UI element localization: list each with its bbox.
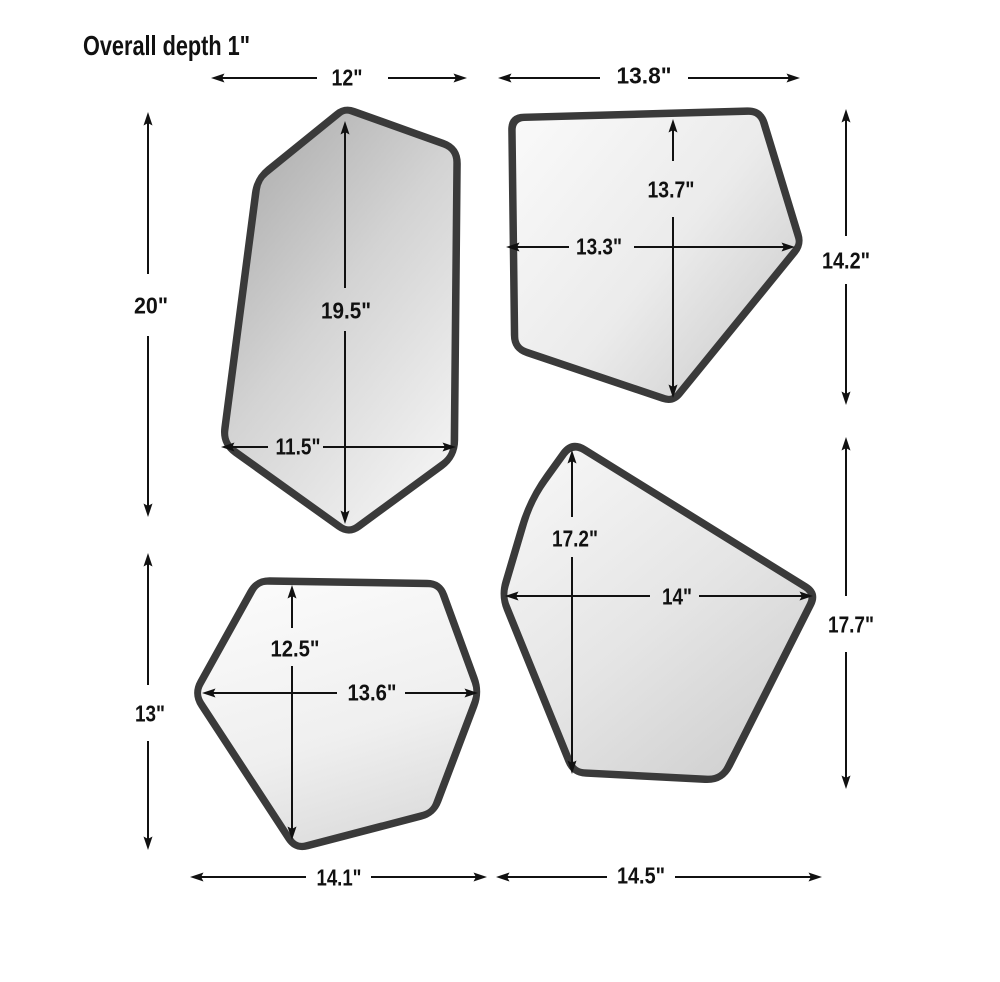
svg-text:Overall depth 1": Overall depth 1" — [83, 30, 250, 61]
svg-text:19.5": 19.5" — [321, 297, 371, 323]
svg-text:13": 13" — [135, 700, 165, 726]
svg-text:13.3": 13.3" — [576, 233, 622, 259]
svg-text:13.8": 13.8" — [617, 62, 672, 88]
svg-text:14.2": 14.2" — [822, 247, 870, 273]
svg-text:14": 14" — [662, 583, 692, 609]
svg-text:14.1": 14.1" — [317, 864, 362, 890]
svg-text:13.7": 13.7" — [648, 176, 695, 202]
svg-text:12.5": 12.5" — [271, 635, 320, 661]
svg-text:13.6": 13.6" — [348, 679, 397, 705]
svg-text:14.5": 14.5" — [617, 862, 665, 888]
svg-text:12": 12" — [332, 64, 363, 90]
svg-text:11.5": 11.5" — [276, 433, 321, 459]
svg-text:20": 20" — [134, 292, 168, 318]
svg-text:17.2": 17.2" — [552, 525, 598, 551]
svg-text:17.7": 17.7" — [828, 611, 874, 637]
